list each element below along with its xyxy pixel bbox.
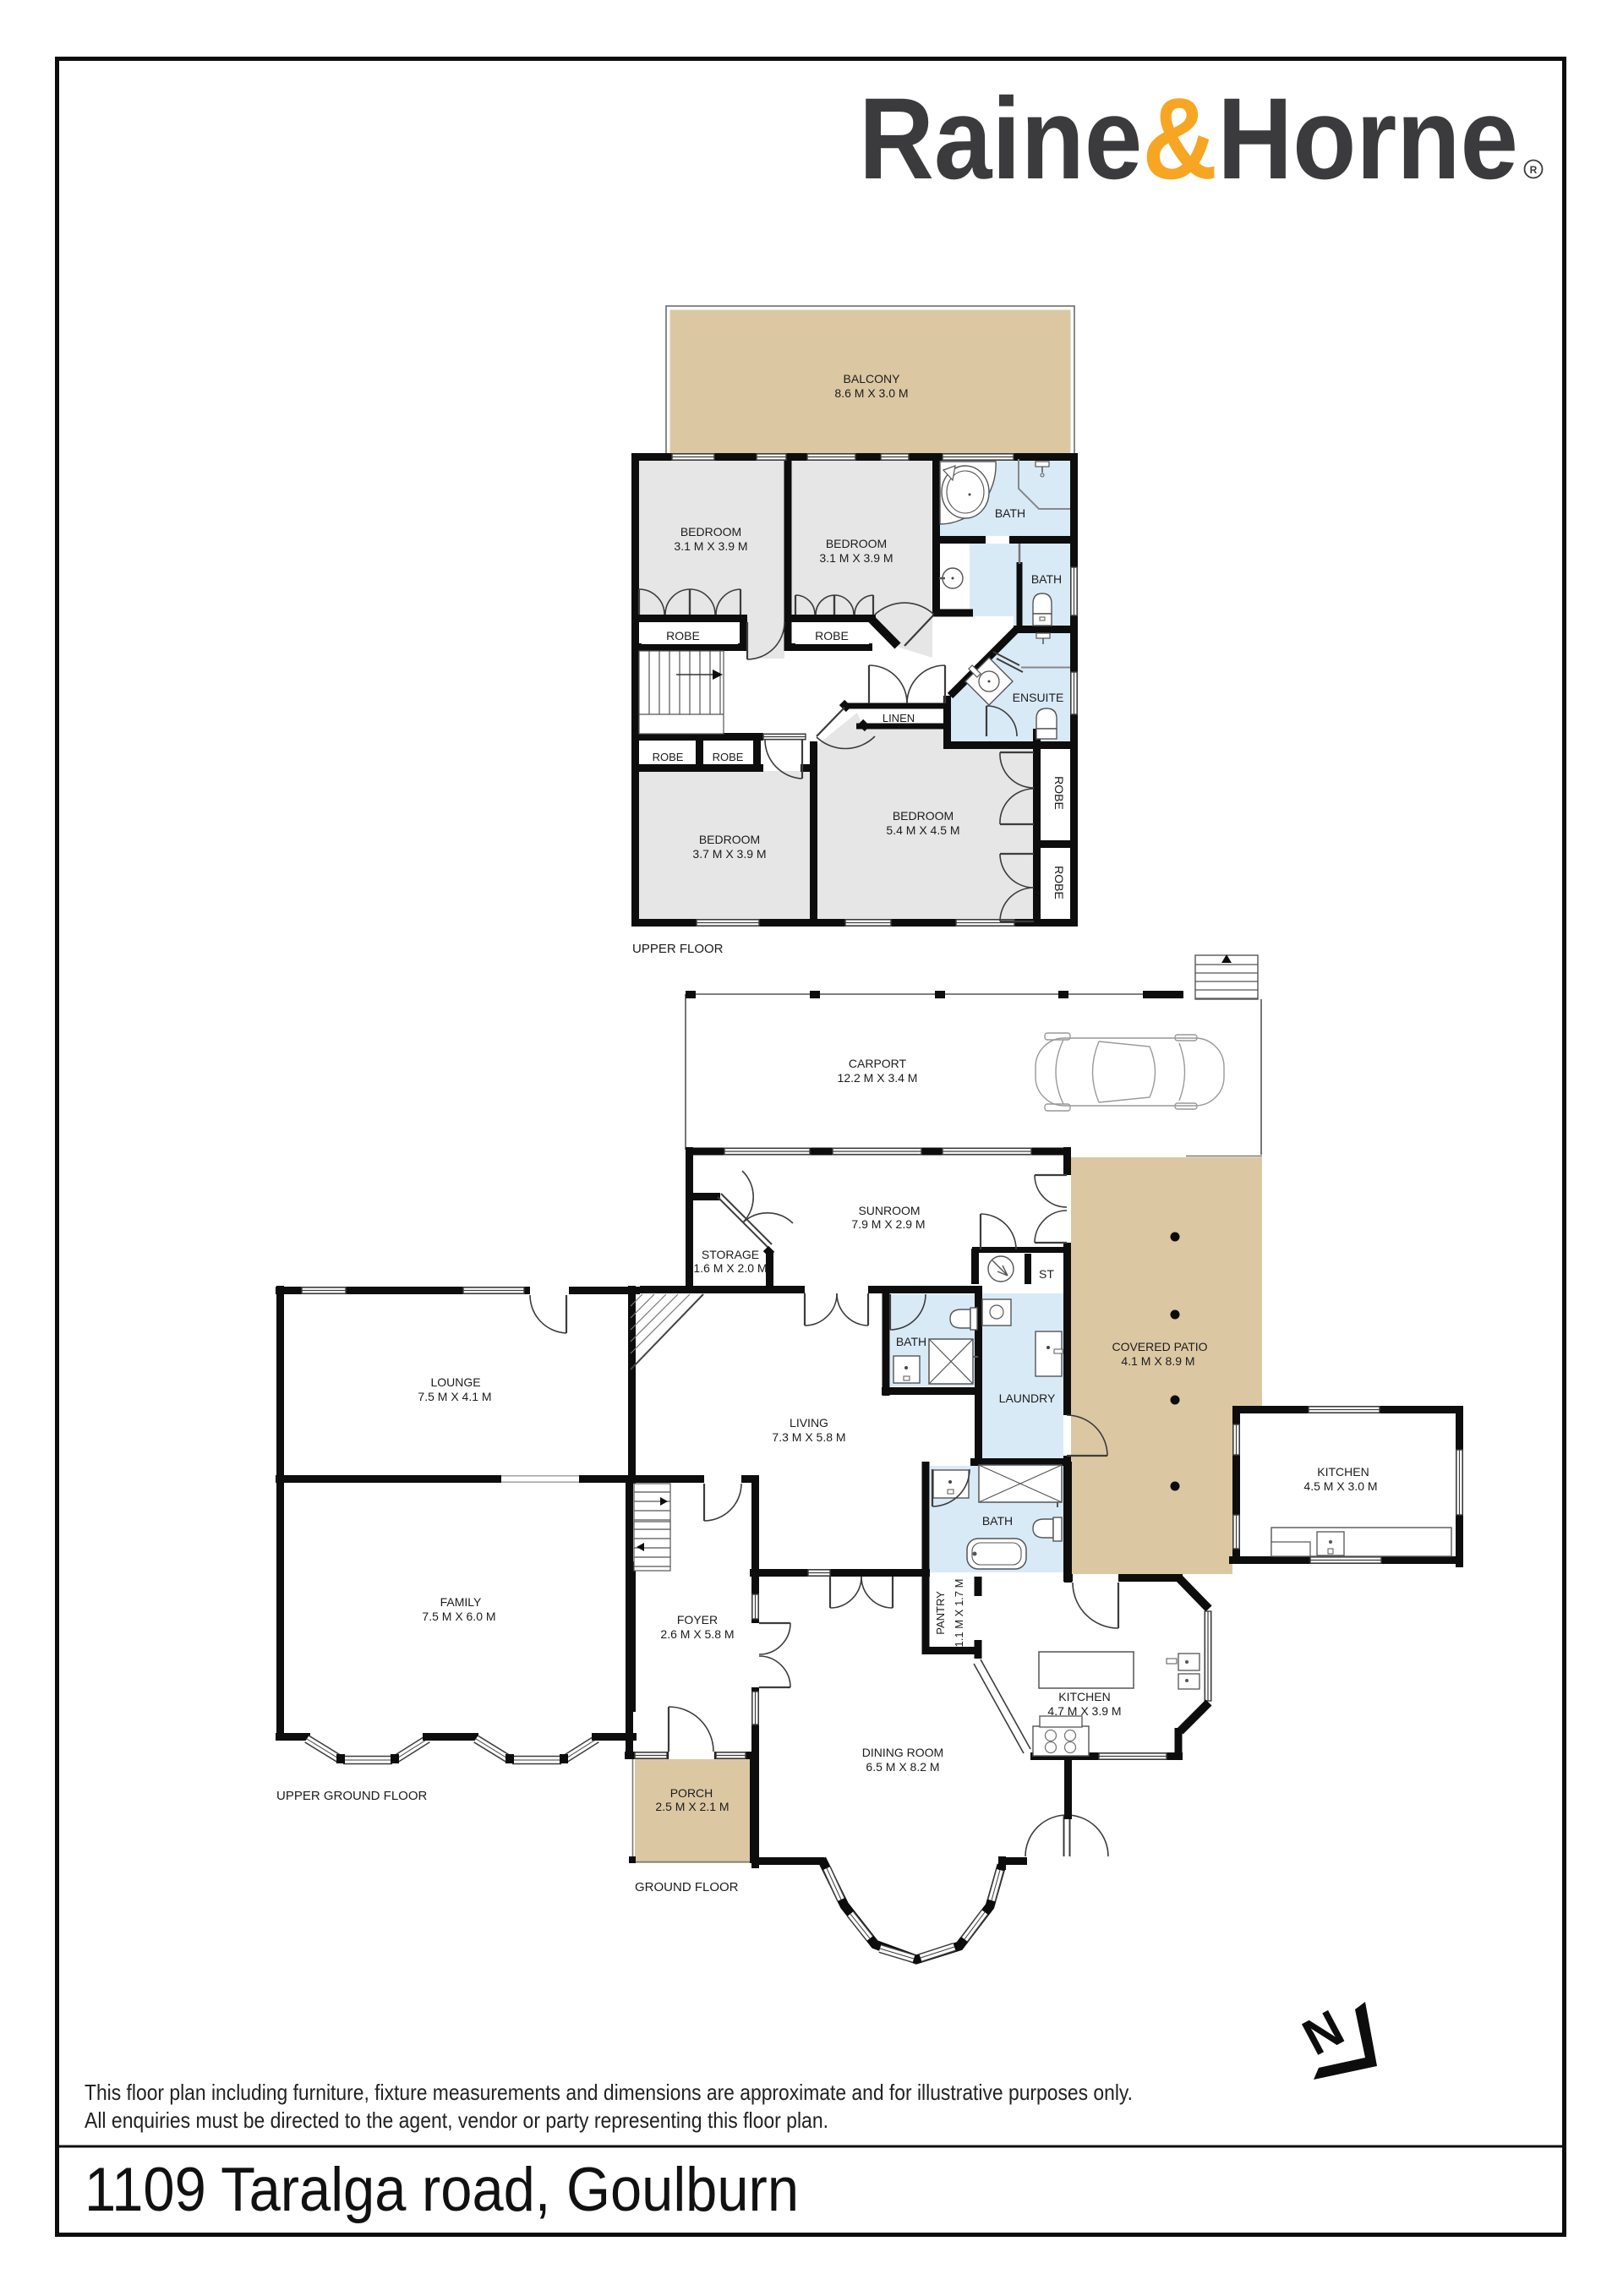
svg-text:3.1 M X 3.9 M: 3.1 M X 3.9 M	[819, 551, 893, 565]
svg-text:LINEN: LINEN	[883, 712, 915, 724]
svg-text:1109 Taralga road, Goulburn: 1109 Taralga road, Goulburn	[85, 2156, 799, 2224]
svg-text:ROBE: ROBE	[1052, 776, 1066, 810]
svg-text:BATH: BATH	[896, 1335, 926, 1348]
svg-text:ROBE: ROBE	[1052, 866, 1066, 899]
svg-text:1.1 M X 1.7 M: 1.1 M X 1.7 M	[953, 1579, 965, 1648]
svg-text:2.6 M X 5.8 M: 2.6 M X 5.8 M	[660, 1627, 734, 1641]
svg-text:3.7 M X 3.9 M: 3.7 M X 3.9 M	[692, 847, 766, 861]
svg-text:6.5 M X 8.2 M: 6.5 M X 8.2 M	[866, 1760, 939, 1774]
svg-text:7.3 M X 5.8 M: 7.3 M X 5.8 M	[772, 1430, 845, 1444]
svg-text:GROUND FLOOR: GROUND FLOOR	[635, 1880, 739, 1894]
svg-text:R: R	[1530, 164, 1538, 176]
svg-text:UPPER GROUND FLOOR: UPPER GROUND FLOOR	[276, 1789, 428, 1803]
svg-text:FAMILY: FAMILY	[440, 1595, 482, 1609]
svg-text:PORCH: PORCH	[670, 1786, 713, 1800]
svg-text:CARPORT: CARPORT	[849, 1057, 907, 1070]
svg-text:ENSUITE: ENSUITE	[1013, 691, 1064, 704]
svg-text:3.1 M X 3.9 M: 3.1 M X 3.9 M	[674, 539, 747, 553]
svg-text:12.2 M X 3.4 M: 12.2 M X 3.4 M	[838, 1071, 918, 1085]
svg-text:UPPER FLOOR: UPPER FLOOR	[632, 942, 724, 956]
svg-text:STORAGE: STORAGE	[702, 1248, 759, 1261]
svg-text:LAUNDRY: LAUNDRY	[999, 1391, 1056, 1405]
svg-text:DINING ROOM: DINING ROOM	[862, 1746, 943, 1759]
svg-text:ROBE: ROBE	[815, 629, 849, 642]
svg-text:LIVING: LIVING	[790, 1416, 828, 1430]
svg-text:COVERED PATIO: COVERED PATIO	[1112, 1340, 1207, 1353]
svg-text:1.6 M X 2.0 M: 1.6 M X 2.0 M	[693, 1261, 767, 1275]
svg-text:N: N	[1293, 1999, 1352, 2067]
svg-text:BATH: BATH	[995, 506, 1025, 520]
svg-text:ROBE: ROBE	[653, 751, 684, 763]
svg-text:FOYER: FOYER	[677, 1613, 718, 1626]
svg-text:ROBE: ROBE	[666, 629, 700, 642]
svg-text:LOUNGE: LOUNGE	[430, 1375, 480, 1389]
svg-text:BEDROOM: BEDROOM	[680, 525, 741, 538]
svg-text:KITCHEN: KITCHEN	[1317, 1465, 1369, 1479]
svg-text:BEDROOM: BEDROOM	[826, 537, 887, 550]
svg-text:4.7 M X 3.9 M: 4.7 M X 3.9 M	[1047, 1704, 1121, 1718]
svg-text:All enquiries must be directed: All enquiries must be directed to the ag…	[85, 2107, 828, 2133]
svg-text:SUNROOM: SUNROOM	[858, 1204, 920, 1217]
svg-text:BEDROOM: BEDROOM	[699, 833, 760, 846]
svg-text:8.6 M X 3.0 M: 8.6 M X 3.0 M	[834, 386, 908, 400]
svg-text:BATH: BATH	[1031, 572, 1062, 586]
svg-text:KITCHEN: KITCHEN	[1058, 1690, 1110, 1703]
svg-text:4.1 M X 8.9 M: 4.1 M X 8.9 M	[1121, 1354, 1194, 1368]
svg-text:ST: ST	[1039, 1267, 1054, 1281]
svg-text:5.4 M X 4.5 M: 5.4 M X 4.5 M	[886, 823, 959, 837]
svg-text:This floor plan including furn: This floor plan including furniture, fix…	[85, 2080, 1133, 2105]
svg-text:ROBE: ROBE	[713, 751, 744, 763]
svg-text:PANTRY: PANTRY	[934, 1591, 947, 1635]
svg-text:BATH: BATH	[982, 1514, 1013, 1528]
svg-text:7.5 M X 6.0 M: 7.5 M X 6.0 M	[422, 1610, 495, 1623]
svg-text:BEDROOM: BEDROOM	[893, 809, 954, 823]
svg-text:BALCONY: BALCONY	[844, 372, 901, 385]
svg-text:4.5 M X 3.0 M: 4.5 M X 3.0 M	[1303, 1479, 1377, 1493]
svg-text:Raine&Horne: Raine&Horne	[859, 74, 1518, 204]
svg-text:7.5 M X 4.1 M: 7.5 M X 4.1 M	[418, 1390, 491, 1403]
svg-text:7.9 M X 2.9 M: 7.9 M X 2.9 M	[851, 1217, 925, 1231]
svg-text:2.5 M X 2.1 M: 2.5 M X 2.1 M	[655, 1800, 729, 1813]
